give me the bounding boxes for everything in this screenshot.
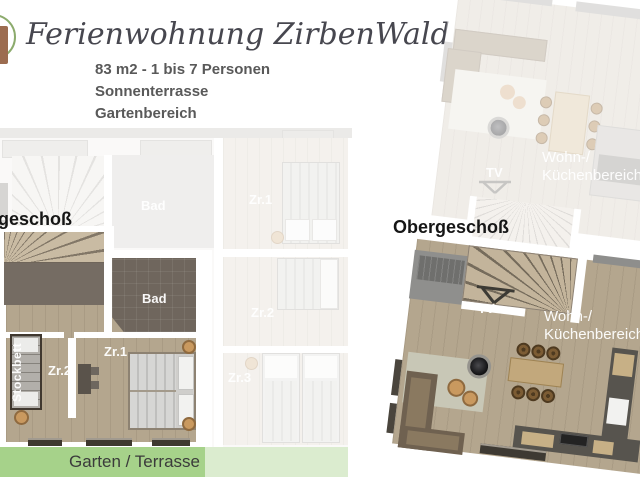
- stove: [559, 433, 588, 447]
- fridge: [606, 398, 629, 426]
- kitchen-cabinet: [521, 431, 554, 448]
- balcony: [409, 250, 471, 305]
- sun-lounger: [416, 255, 465, 284]
- plan-rotated: [381, 232, 640, 480]
- sofa-cushion: [406, 430, 459, 450]
- slide-canvas: Ferienwohnung ZirbenWald 83 m2 - 1 bis 7…: [0, 0, 640, 480]
- upper-floor-plan: TV Wohn-/ Küchenbereich: [0, 0, 640, 480]
- room-label-tv: TV: [478, 301, 495, 316]
- upper-floor-label: Obergeschoß: [393, 217, 509, 238]
- kitchen-cabinet: [592, 440, 613, 455]
- room-label-wohn-line2: Küchenbereich: [544, 326, 640, 344]
- kitchen-cabinet: [612, 353, 635, 377]
- room-label-wohn-line1: Wohn-/: [544, 308, 592, 326]
